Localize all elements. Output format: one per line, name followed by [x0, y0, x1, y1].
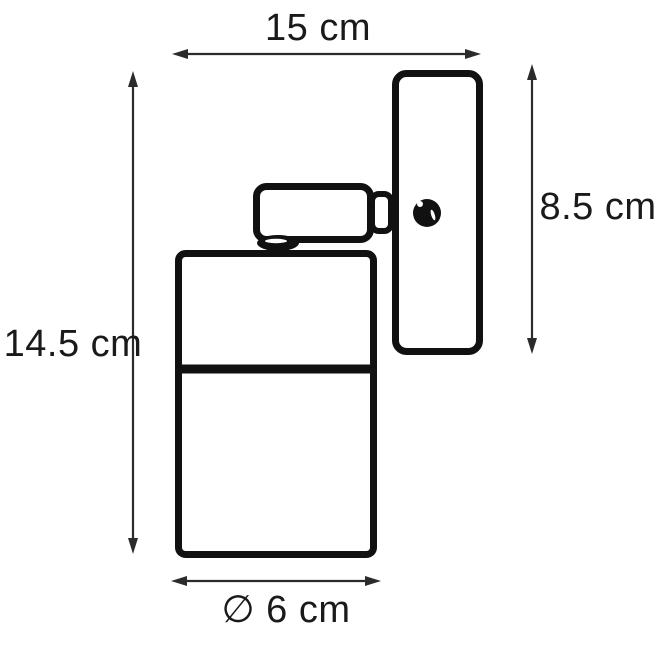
total-height-dimension-arrow: [128, 71, 138, 554]
diameter-dimension-arrow: [171, 576, 381, 586]
mounting-screw: [413, 199, 441, 227]
plate-height-dimension-label: 8.5 cm: [539, 188, 656, 226]
plate-height-dimension-arrow: [527, 64, 537, 354]
total-height-dimension-label: 14.5 cm: [4, 325, 143, 363]
arm-knuckle: [372, 194, 391, 231]
pivot-joint: [257, 235, 299, 251]
lamp-body: [179, 254, 374, 555]
diameter-dimension-label: ∅ 6 cm: [221, 591, 350, 629]
dimension-diagram: 15 cm 14.5 cm 8.5 cm ∅ 6 cm: [0, 0, 657, 657]
width-dimension-arrow: [172, 49, 481, 59]
swivel-arm: [257, 187, 371, 240]
width-dimension-label: 15 cm: [265, 9, 371, 47]
